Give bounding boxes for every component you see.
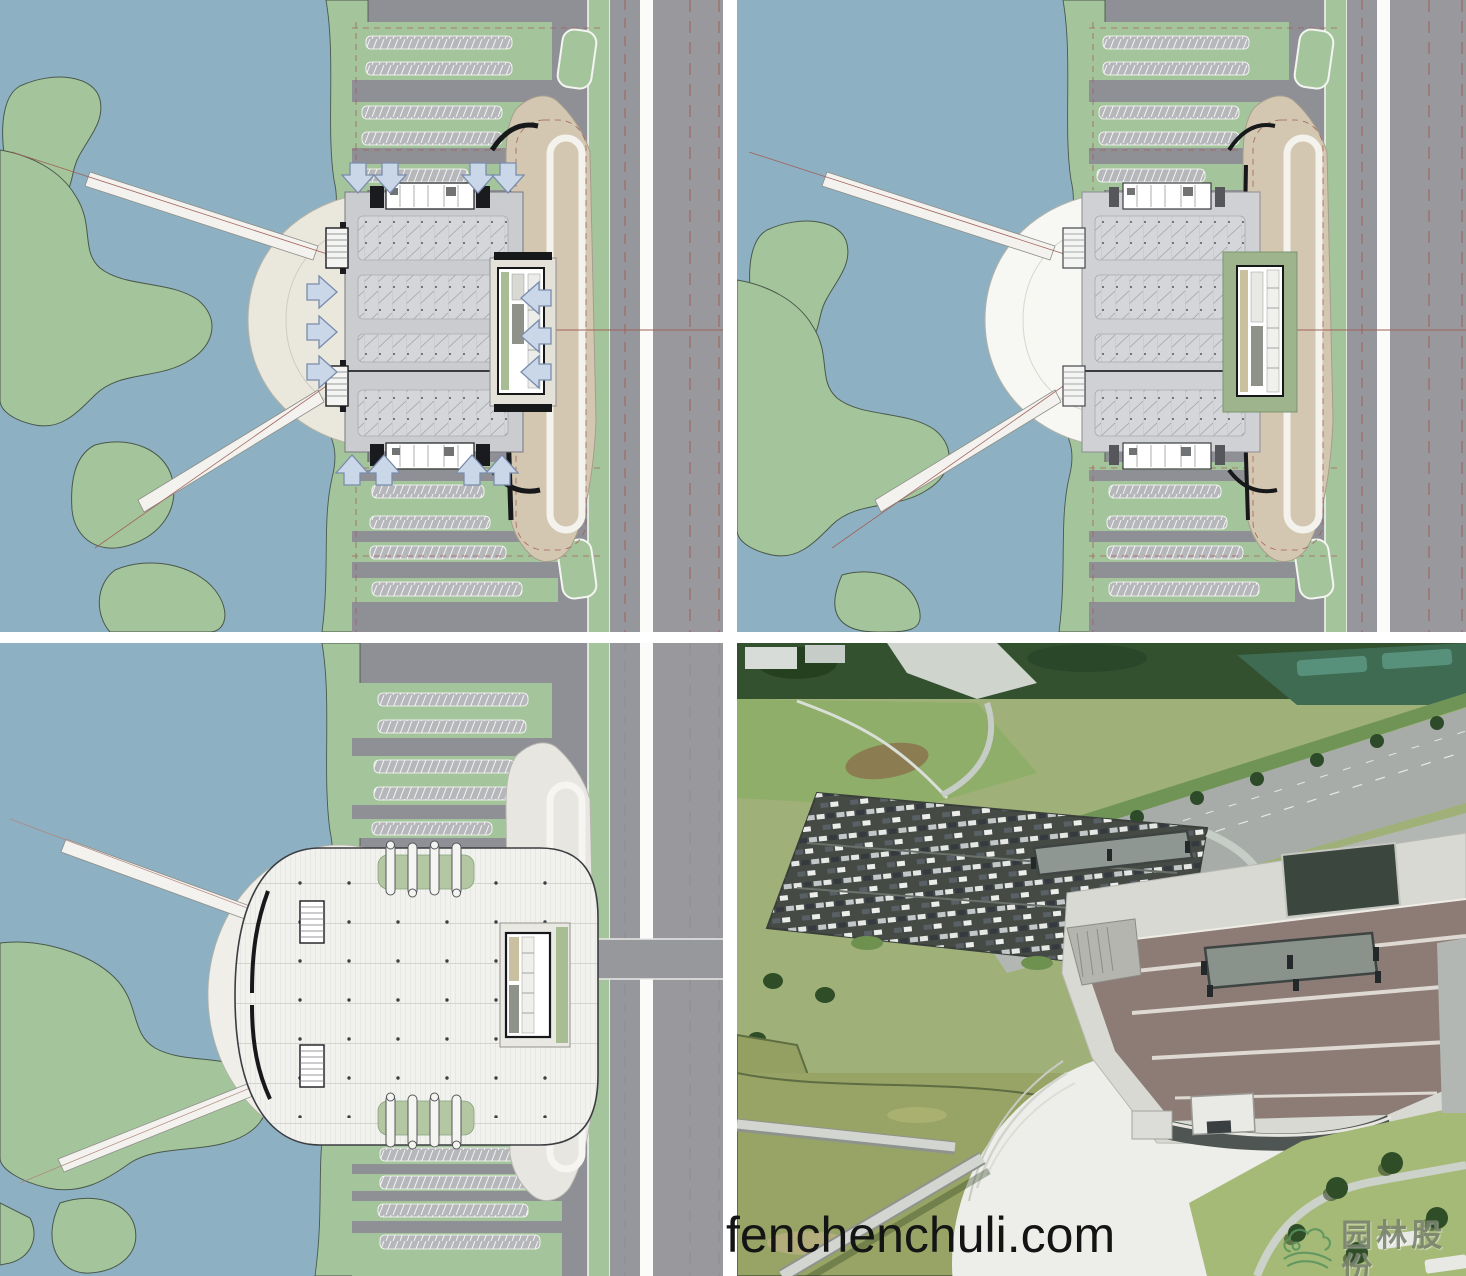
watermark-text: fenchenchuli.com <box>726 1206 1115 1264</box>
site-plan-roof-drawing <box>0 643 723 1276</box>
aerial-photo-rendering <box>737 643 1466 1276</box>
cloud-landscape-logo-icon <box>1280 1220 1335 1274</box>
brand-name: 园林股份 <box>1341 1220 1466 1276</box>
site-plan-ground-drawing <box>0 0 723 632</box>
panel-site-plan-upper <box>737 0 1466 632</box>
brand-logo: 园林股份 股票代码:605303 <box>1280 1220 1466 1276</box>
panel-site-plan-roof <box>0 643 723 1276</box>
site-plan-upper-drawing <box>737 0 1466 632</box>
panel-aerial-photo <box>737 643 1466 1276</box>
image-grid <box>0 0 1466 1276</box>
collage: fenchenchuli.com 园林股份 股票代码:605303 <box>0 0 1466 1276</box>
panel-site-plan-ground <box>0 0 723 632</box>
